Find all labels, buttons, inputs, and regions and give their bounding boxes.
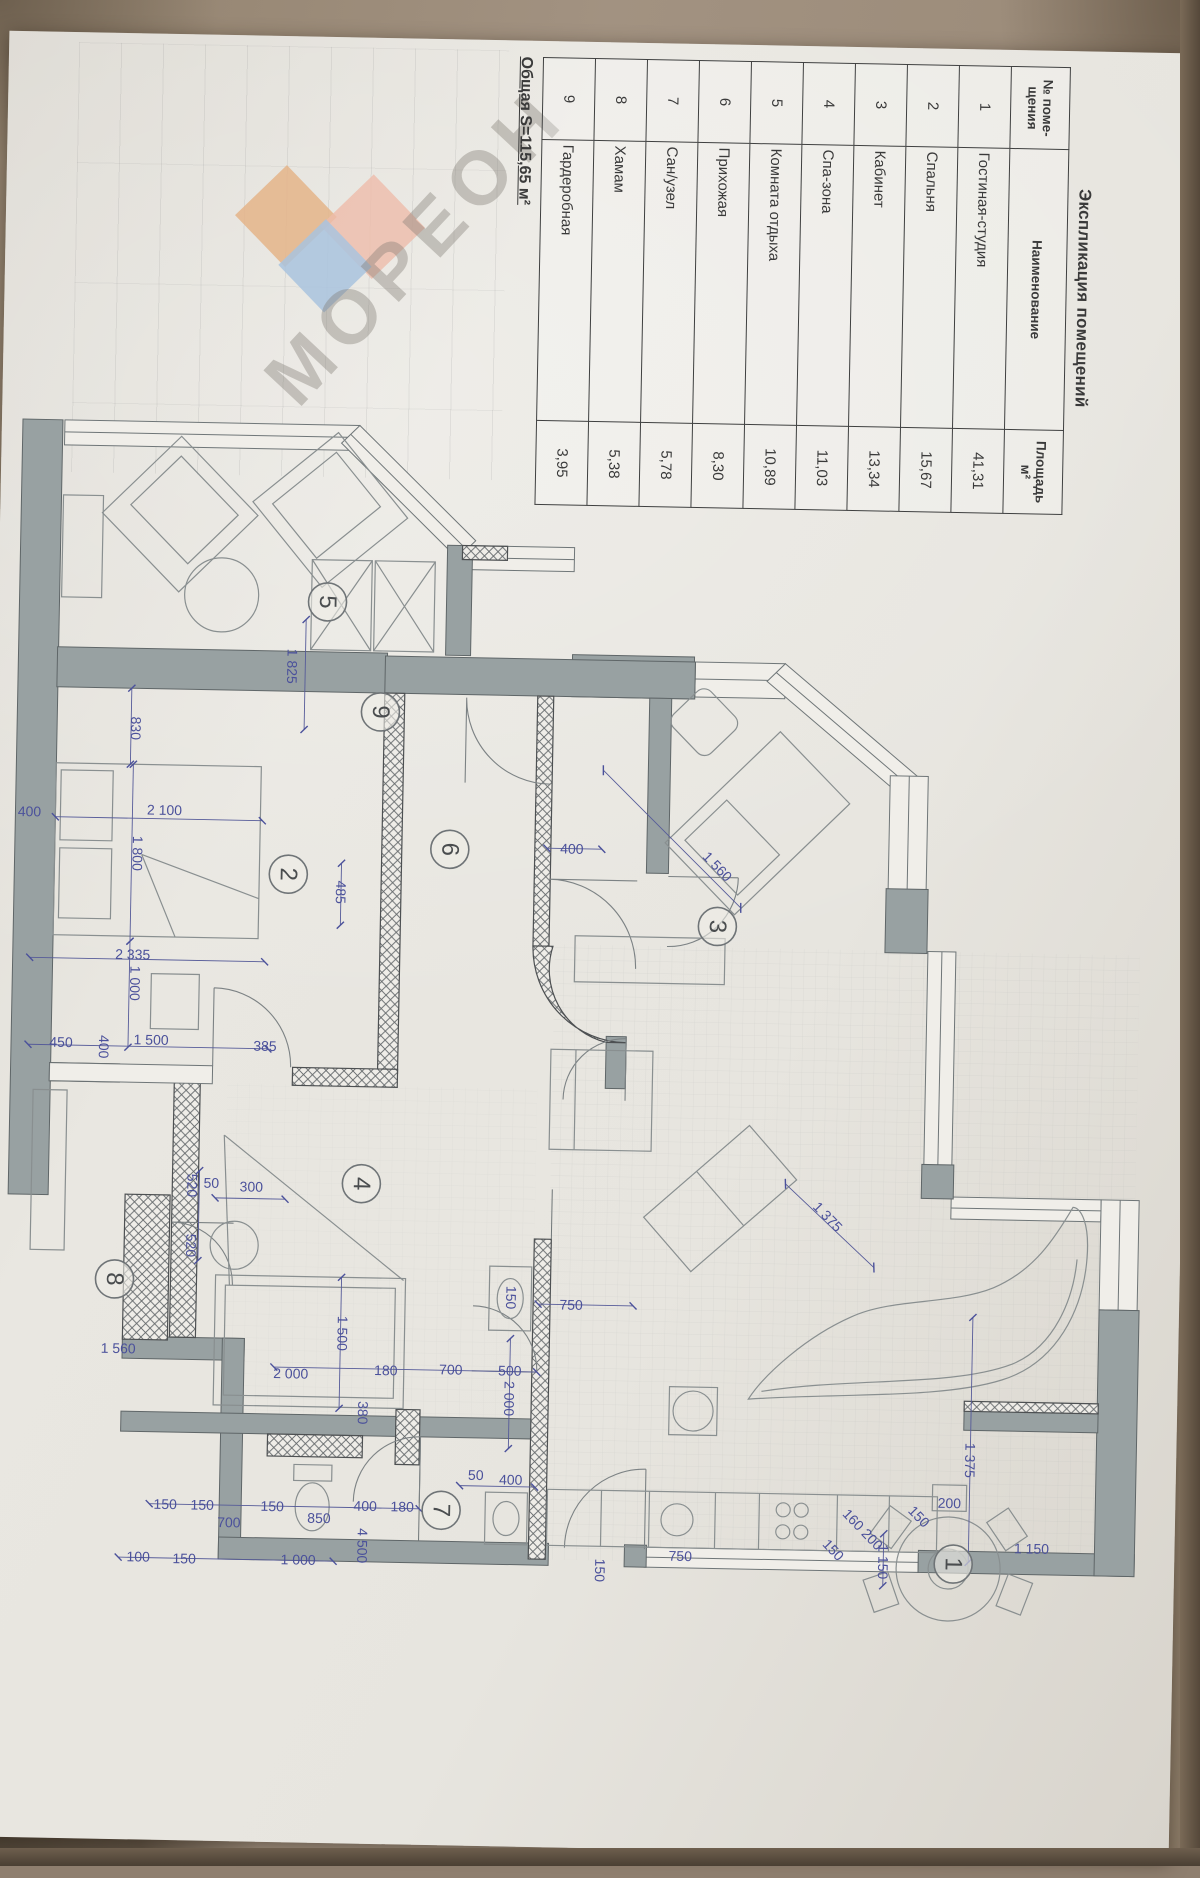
svg-text:4: 4	[348, 1177, 375, 1191]
explication-row: 1Гостиная-студия41,31	[951, 65, 1012, 513]
room-name: Спа-зона	[797, 145, 854, 427]
explication-block: Экспликация помещений № поме- щения Наим…	[508, 56, 1097, 529]
column-header-number: № поме- щения	[1010, 66, 1071, 149]
dimension-label: 1 000	[127, 966, 144, 1002]
explication-row: 9Гардеробная3,95	[535, 57, 596, 505]
dimension-label: 520	[183, 1234, 199, 1258]
dimension-label: 100	[126, 1548, 150, 1564]
dimension-label: 1 000	[280, 1551, 316, 1568]
dimension-label: 700	[439, 1361, 463, 1377]
dimension-label: 485	[333, 880, 349, 904]
room-area: 13,34	[847, 427, 901, 512]
dimension-tick	[874, 1263, 875, 1273]
dimension-label: 150	[190, 1496, 214, 1512]
svg-text:6: 6	[436, 842, 463, 856]
column-header-name: Наименование	[1004, 149, 1068, 431]
dimension-label: 50	[468, 1467, 484, 1483]
dimension-label: 400	[18, 803, 42, 819]
dimension-label: 150	[592, 1558, 608, 1582]
row-number: 8	[594, 58, 648, 141]
room-number-1: 1	[934, 1545, 973, 1584]
dimension-label: 500	[498, 1362, 522, 1378]
dimension-label: 150	[260, 1498, 284, 1514]
room-area: 15,67	[899, 428, 953, 513]
dimension-label: 1 560	[101, 1340, 137, 1357]
room-area: 41,31	[951, 429, 1005, 514]
dimension-label: 2 335	[115, 946, 151, 963]
explication-row: 5Комната отдыха10,89	[743, 61, 804, 509]
explication-row: 4Спа-зона11,03	[795, 62, 856, 510]
round-table	[184, 557, 259, 632]
svg-text:9: 9	[367, 705, 394, 719]
paper-sheet: МОРЕОН	[0, 31, 1200, 1860]
pillow	[58, 848, 111, 919]
room-number-7: 7	[422, 1491, 461, 1530]
dimension-label: 750	[559, 1296, 583, 1312]
dimension-label: 150	[172, 1550, 196, 1566]
room-name: Гардеробная	[537, 140, 594, 422]
dimension-label: 180	[390, 1498, 414, 1514]
explication-row: 2Спальня15,67	[899, 64, 960, 512]
svg-text:3: 3	[704, 920, 731, 934]
washbasin	[484, 1492, 527, 1545]
bed	[53, 763, 261, 939]
nightstand	[150, 974, 199, 1030]
dimension-label: 2 000	[501, 1381, 518, 1417]
row-number: 3	[854, 63, 908, 146]
row-number: 7	[646, 59, 700, 142]
explication-header-row: № поме- щения Наименование Площадь м²	[1003, 66, 1071, 514]
row-number: 5	[750, 61, 804, 144]
dimension-label: 200	[938, 1495, 962, 1511]
dimension-label: 2 100	[147, 801, 183, 818]
explication-row: 8Хамам5,38	[587, 58, 648, 506]
dimension-label: 4 500	[354, 1528, 371, 1564]
desk	[665, 732, 850, 915]
dimension-label: 1 375	[962, 1443, 979, 1479]
room-number-9: 9	[361, 693, 400, 732]
dimension-label: 400	[560, 840, 584, 856]
dimension-label: 400	[96, 1035, 112, 1059]
dimension-label: 50	[203, 1175, 219, 1191]
room-name: Комната отдыха	[745, 144, 802, 426]
row-number: 9	[542, 57, 596, 140]
dimension-label: 300	[239, 1178, 263, 1194]
photo-bottom-edge	[0, 1848, 1200, 1866]
room-area: 3,95	[535, 421, 589, 506]
dimension-label: 400	[353, 1498, 377, 1514]
dimension-label: 385	[253, 1038, 277, 1054]
room-number-2: 2	[269, 855, 308, 894]
dimension-label: 180	[374, 1362, 398, 1378]
room-area: 11,03	[795, 426, 849, 511]
svg-text:7: 7	[427, 1503, 454, 1517]
svg-text:5: 5	[314, 595, 341, 609]
dimension-label: 1 150	[875, 1544, 892, 1580]
dimension-label: 1 500	[334, 1316, 351, 1352]
blanket-fold	[140, 854, 260, 938]
room-number-6: 6	[430, 830, 469, 869]
svg-text:8: 8	[101, 1272, 128, 1286]
row-number: 6	[698, 60, 752, 143]
armchair	[102, 436, 258, 592]
dimension-label: 520	[184, 1174, 200, 1198]
dimension-label: 1 800	[129, 836, 146, 872]
dimension-label: 830	[128, 716, 144, 740]
room-area: 10,89	[743, 425, 797, 510]
dimension-label: 750	[668, 1548, 692, 1564]
photo-right-edge	[1180, 0, 1200, 1866]
dimension-label: 1 560	[700, 848, 736, 884]
dimension-label: 150	[503, 1286, 519, 1310]
room-number-4: 4	[342, 1164, 381, 1203]
svg-text:1: 1	[940, 1557, 967, 1571]
explication-table: № поме- щения Наименование Площадь м² 1Г…	[534, 57, 1071, 515]
dimension-label: 700	[217, 1514, 241, 1530]
dimension-label: 1 150	[1014, 1540, 1050, 1557]
dimension-label: 1 825	[284, 649, 301, 685]
dimension-label: 380	[355, 1401, 371, 1425]
photo-of-floor-plan: { "explication": { "title": "Экспликация…	[0, 0, 1200, 1866]
room-number-3: 3	[698, 907, 737, 946]
dimension-label: 850	[307, 1510, 331, 1526]
room-name: Кабинет	[849, 146, 906, 428]
pillow	[60, 770, 113, 841]
dimension-label: 400	[499, 1471, 523, 1487]
room-area: 8,30	[691, 424, 745, 509]
dimension-label: 2 000	[273, 1365, 309, 1382]
room-name: Гостиная-студия	[952, 148, 1009, 430]
dimension-label: 1 500	[133, 1031, 169, 1048]
side-table	[62, 495, 104, 598]
column-header-area: Площадь м²	[1003, 430, 1064, 515]
room-name: Спальня	[900, 147, 957, 429]
room-area: 5,78	[639, 423, 693, 508]
svg-text:2: 2	[275, 867, 302, 881]
room-name: Сан/узел	[641, 142, 698, 424]
explication-row: 7Сан/узел5,78	[639, 59, 700, 507]
room-area: 5,38	[587, 422, 641, 507]
explication-row: 3Кабинет13,34	[847, 63, 908, 511]
room-name: Прихожая	[693, 143, 750, 425]
explication-row: 6Прихожая8,30	[691, 60, 752, 508]
row-number: 2	[906, 64, 960, 147]
row-number: 4	[802, 62, 856, 145]
dimension-label: 450	[49, 1034, 73, 1050]
floor-grid	[543, 944, 1140, 1570]
room-number-8: 8	[95, 1260, 134, 1299]
row-number: 1	[958, 65, 1012, 148]
room-name: Хамам	[589, 141, 646, 423]
room-number-5: 5	[308, 583, 347, 622]
dimension-tick	[785, 1179, 786, 1189]
dimension-label: 150	[153, 1496, 177, 1512]
